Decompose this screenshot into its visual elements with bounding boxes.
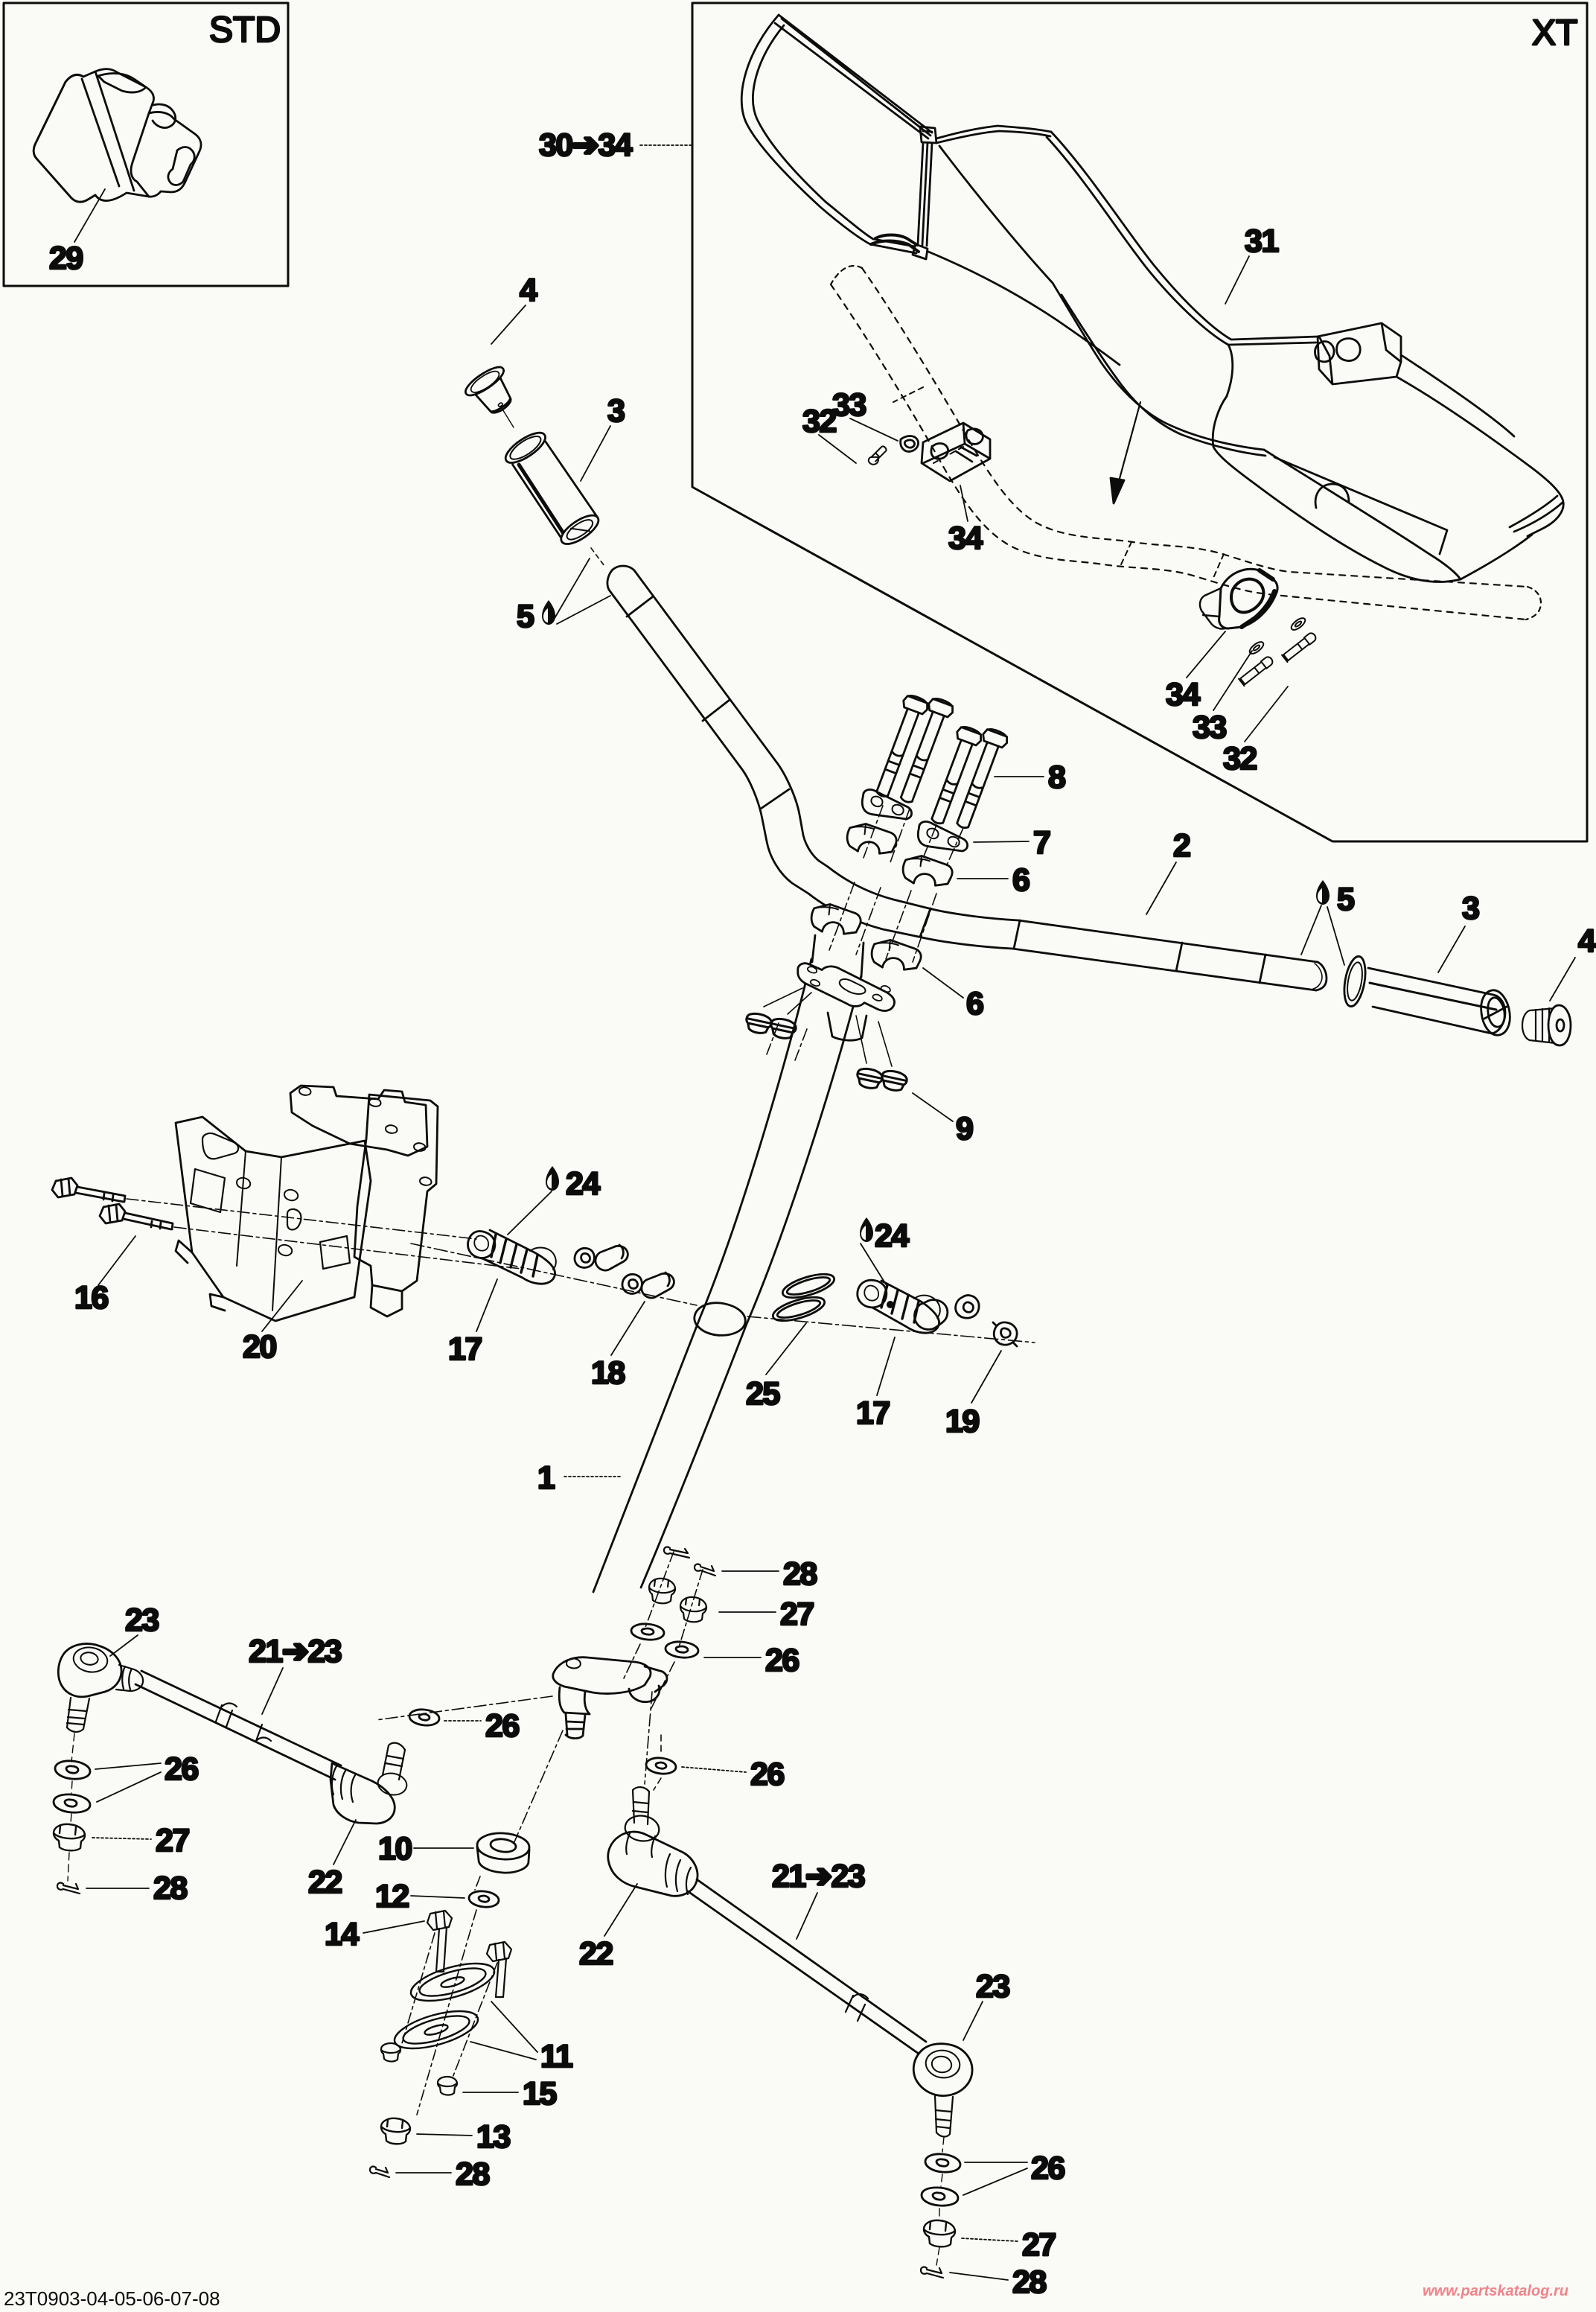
svg-text:32: 32 (1223, 741, 1257, 777)
svg-text:26: 26 (750, 1757, 784, 1792)
svg-text:28: 28 (456, 2156, 489, 2192)
svg-text:3: 3 (607, 393, 625, 429)
svg-text:26: 26 (165, 1751, 198, 1787)
svg-text:24: 24 (875, 1218, 909, 1254)
svg-text:26: 26 (765, 1643, 799, 1678)
svg-text:4: 4 (1578, 923, 1596, 959)
svg-text:15: 15 (523, 2076, 556, 2112)
svg-text:29: 29 (49, 241, 83, 276)
svg-text:13: 13 (476, 2119, 510, 2155)
svg-text:31: 31 (1245, 223, 1278, 259)
svg-text:27: 27 (156, 1823, 189, 1859)
svg-text:24: 24 (566, 1166, 600, 1202)
svg-text:19: 19 (945, 1404, 979, 1439)
svg-text:STD: STD (209, 10, 281, 50)
svg-text:3: 3 (1462, 891, 1479, 926)
svg-text:www.partskatalog.ru: www.partskatalog.ru (1423, 2283, 1568, 2299)
svg-text:23: 23 (125, 1602, 159, 1638)
svg-text:7: 7 (1033, 825, 1050, 861)
svg-text:18: 18 (591, 1355, 625, 1391)
svg-text:22: 22 (308, 1864, 342, 1900)
svg-text:30➔34: 30➔34 (539, 127, 633, 163)
svg-text:2: 2 (1173, 828, 1190, 864)
svg-text:10: 10 (378, 1831, 412, 1867)
svg-text:8: 8 (1048, 759, 1065, 795)
svg-text:16: 16 (74, 1280, 108, 1316)
svg-text:11: 11 (540, 2039, 572, 2074)
svg-text:27: 27 (780, 1596, 814, 1632)
svg-text:20: 20 (243, 1329, 276, 1365)
svg-text:26: 26 (1031, 2150, 1064, 2186)
svg-text:17: 17 (856, 1395, 890, 1431)
svg-text:21➔23: 21➔23 (249, 1634, 342, 1669)
svg-text:23T0903-04-05-06-07-08: 23T0903-04-05-06-07-08 (4, 2287, 220, 2310)
svg-text:14: 14 (325, 1917, 359, 1952)
svg-text:34: 34 (948, 520, 983, 556)
svg-text:21➔23: 21➔23 (772, 1859, 865, 1894)
svg-text:5: 5 (517, 599, 534, 634)
svg-text:26: 26 (485, 1708, 519, 1744)
svg-text:28: 28 (1012, 2264, 1046, 2300)
svg-text:28: 28 (783, 1556, 817, 1592)
svg-text:1: 1 (537, 1460, 555, 1496)
svg-text:34: 34 (1166, 677, 1200, 713)
svg-text:33: 33 (1193, 710, 1226, 745)
svg-text:6: 6 (1012, 862, 1030, 898)
svg-text:XT: XT (1532, 13, 1577, 53)
svg-text:4: 4 (520, 273, 537, 308)
svg-text:9: 9 (956, 1111, 973, 1147)
svg-text:5: 5 (1337, 882, 1354, 917)
svg-text:28: 28 (153, 1870, 187, 1906)
svg-text:12: 12 (375, 1879, 409, 1914)
svg-text:33: 33 (832, 387, 866, 423)
svg-text:17: 17 (448, 1331, 482, 1367)
svg-text:32: 32 (802, 404, 836, 439)
svg-text:27: 27 (1022, 2227, 1056, 2263)
svg-text:22: 22 (579, 1936, 613, 1972)
svg-text:25: 25 (746, 1376, 779, 1412)
svg-text:23: 23 (976, 1969, 1009, 2004)
svg-text:6: 6 (966, 986, 983, 1022)
